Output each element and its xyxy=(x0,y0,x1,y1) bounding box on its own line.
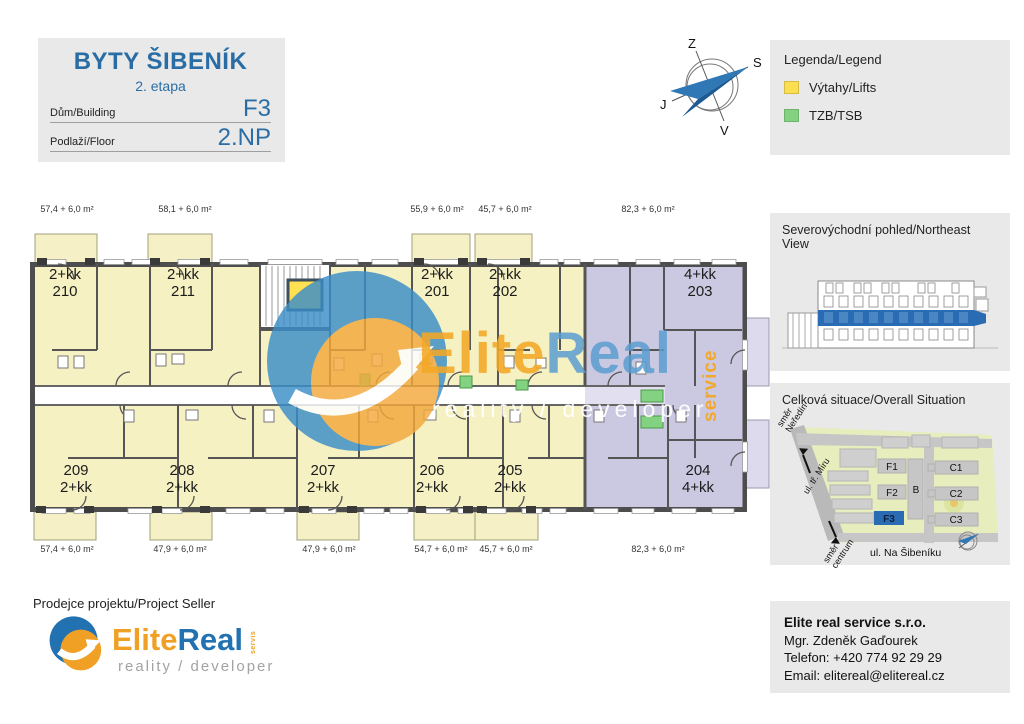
apt-num: 205 xyxy=(494,462,526,479)
area-top-202: 45,7 + 6,0 m² xyxy=(478,204,531,214)
legend: Legenda/Legend Výtahy/Lifts TZB/TSB xyxy=(770,40,1010,155)
apt-num: 204 xyxy=(682,462,714,479)
contact-company: Elite real service s.r.o. xyxy=(784,614,996,632)
area-bottom-206: 54,7 + 6,0 m² xyxy=(414,544,467,554)
apt-num: 209 xyxy=(60,462,92,479)
map-label-c2: C2 xyxy=(950,489,963,500)
legend-item-tzb: TZB/TSB xyxy=(784,108,996,123)
page: BYTY ŠIBENÍK 2. etapa Dům/Building F3 Po… xyxy=(0,0,1024,724)
wordmark-real: Real xyxy=(177,622,242,657)
map-label-c1: C1 xyxy=(950,463,963,474)
building-label: Dům/Building xyxy=(50,107,115,122)
map-label-f3: F3 xyxy=(883,514,895,525)
apt-num: 207 xyxy=(307,462,339,479)
map-label-b: B xyxy=(913,485,920,496)
compass-j: J xyxy=(660,97,667,112)
area-top-201: 55,9 + 6,0 m² xyxy=(410,204,463,214)
apt-type: 2+kk xyxy=(489,266,521,283)
elitereal-wordmark: EliteReal xyxy=(112,622,243,658)
area-top-211: 58,1 + 6,0 m² xyxy=(158,204,211,214)
apt-num: 210 xyxy=(49,283,81,300)
lift-color-swatch xyxy=(784,81,799,94)
apt-type: 2+kk xyxy=(307,479,339,496)
legend-title: Legenda/Legend xyxy=(784,52,996,67)
contact-phone: Telefon: +420 774 92 29 29 xyxy=(784,649,996,667)
area-top-203: 82,3 + 6,0 m² xyxy=(621,204,674,214)
apartment-label-204: 204 4+kk xyxy=(682,462,714,496)
apt-num: 202 xyxy=(489,283,521,300)
apartment-label-207: 207 2+kk xyxy=(307,462,339,496)
contact-panel: Elite real service s.r.o. Mgr. Zdeněk Ga… xyxy=(770,601,1010,693)
project-subtitle: 2. etapa xyxy=(50,78,271,94)
street-na-sibeniku: ul. Na Šibeníku xyxy=(870,547,941,559)
floor-row: Podlaží/Floor 2.NP xyxy=(50,125,271,152)
floor-label: Podlaží/Floor xyxy=(50,136,115,151)
apt-type: 2+kk xyxy=(166,479,198,496)
situation-title: Celková situace/Overall Situation xyxy=(782,393,998,407)
apt-type: 2+kk xyxy=(494,479,526,496)
apt-type: 4+kk xyxy=(684,266,716,283)
wordmark-servis: servis xyxy=(250,626,257,654)
area-bottom-207: 47,9 + 6,0 m² xyxy=(302,544,355,554)
project-title: BYTY ŠIBENÍK xyxy=(50,48,271,76)
map-label-f2: F2 xyxy=(886,488,898,499)
compass-v: V xyxy=(720,123,729,138)
wordmark-elite: Elite xyxy=(112,622,177,657)
apt-type: 2+kk xyxy=(167,266,199,283)
elitereal-logo-icon xyxy=(46,614,106,674)
area-top-210: 57,4 + 6,0 m² xyxy=(40,204,93,214)
northeast-elevation-drawing xyxy=(782,263,998,363)
apt-type: 4+kk xyxy=(682,479,714,496)
building-row: Dům/Building F3 xyxy=(50,96,271,123)
elitereal-watermark-text: EliteReal xyxy=(418,320,672,387)
apartment-label-209: 209 2+kk xyxy=(60,462,92,496)
northeast-view-panel: Severovýchodní pohled/Northeast View xyxy=(770,213,1010,371)
apt-type: 2+kk xyxy=(416,479,448,496)
apartment-label-210: 2+kk 210 xyxy=(49,266,81,300)
compass-z: Z xyxy=(688,36,696,51)
legend-item-lifts: Výtahy/Lifts xyxy=(784,80,996,95)
apartment-label-211: 2+kk 211 xyxy=(167,266,199,300)
apartment-label-205: 205 2+kk xyxy=(494,462,526,496)
situation-panel: Celková situace/Overall Situation xyxy=(770,383,1010,565)
apt-num: 206 xyxy=(416,462,448,479)
compass-s: S xyxy=(753,55,762,70)
lift-label: Výtahy/Lifts xyxy=(809,80,876,95)
northeast-view-title: Severovýchodní pohled/Northeast View xyxy=(782,223,998,251)
map-label-f1: F1 xyxy=(886,462,898,473)
apt-type: 2+kk xyxy=(60,479,92,496)
compass-rose-icon: Z S J V xyxy=(658,33,773,141)
apartment-label-202: 2+kk 202 xyxy=(489,266,521,300)
contact-person: Mgr. Zdeněk Gaďourek xyxy=(784,632,996,650)
apt-num: 203 xyxy=(684,283,716,300)
area-bottom-209: 57,4 + 6,0 m² xyxy=(40,544,93,554)
map-label-c3: C3 xyxy=(950,515,963,526)
area-bottom-208: 47,9 + 6,0 m² xyxy=(153,544,206,554)
contact-email: Email: elitereal@elitereal.cz xyxy=(784,667,996,685)
seller-label: Prodejce projektu/Project Seller xyxy=(33,596,215,611)
apt-type: 2+kk xyxy=(49,266,81,283)
apartment-label-203: 4+kk 203 xyxy=(684,266,716,300)
tzb-color-swatch xyxy=(784,109,799,122)
apartment-label-208: 208 2+kk xyxy=(166,462,198,496)
apt-num: 211 xyxy=(167,283,199,300)
area-bottom-204: 82,3 + 6,0 m² xyxy=(631,544,684,554)
watermark-real: Real xyxy=(546,321,673,386)
building-value: F3 xyxy=(243,96,271,122)
apt-num: 208 xyxy=(166,462,198,479)
floor-value: 2.NP xyxy=(218,125,271,151)
watermark-service-text: service xyxy=(700,326,722,422)
area-bottom-205: 45,7 + 6,0 m² xyxy=(479,544,532,554)
watermark-elite: Elite xyxy=(418,321,546,386)
watermark-tagline: reality / developer xyxy=(432,396,709,423)
tzb-label: TZB/TSB xyxy=(809,108,862,123)
apartment-label-206: 206 2+kk xyxy=(416,462,448,496)
wordmark-tagline: reality / developer xyxy=(118,658,274,675)
title-block: BYTY ŠIBENÍK 2. etapa Dům/Building F3 Po… xyxy=(38,38,285,162)
